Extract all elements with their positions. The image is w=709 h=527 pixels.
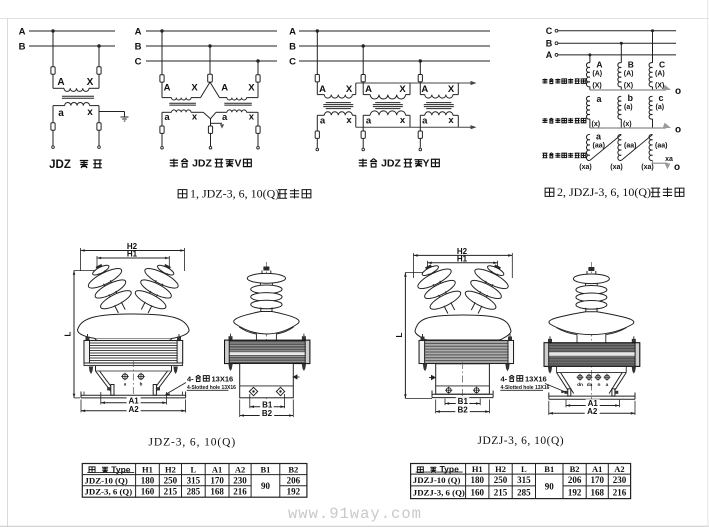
svg-text:X: X (346, 84, 353, 95)
svg-text:B: B (19, 42, 26, 53)
svg-text:(X): (X) (655, 83, 664, 90)
svg-text:A1: A1 (592, 464, 602, 474)
svg-text:a: a (606, 383, 609, 388)
svg-text:A: A (421, 84, 428, 95)
svg-text:(A): (A) (624, 71, 634, 78)
svg-text:B2: B2 (262, 409, 273, 418)
svg-text:B2: B2 (570, 464, 580, 474)
svg-text:A: A (164, 83, 171, 94)
svg-text:V: V (234, 158, 241, 170)
svg-text:Y: Y (422, 158, 429, 170)
svg-text:170: 170 (210, 475, 224, 485)
svg-text:n: n (598, 383, 601, 388)
svg-text:H1: H1 (142, 464, 153, 474)
svg-text:A2: A2 (587, 407, 598, 416)
svg-text:250: 250 (494, 475, 508, 485)
svg-text:JDZ: JDZ (192, 158, 212, 170)
svg-text:180: 180 (141, 475, 155, 485)
svg-text:A2: A2 (614, 464, 624, 474)
svg-text:x: x (448, 115, 454, 126)
svg-text:B: B (628, 60, 634, 70)
svg-text:160: 160 (471, 487, 485, 497)
svg-text:315: 315 (517, 475, 531, 485)
svg-text:b: b (628, 93, 634, 103)
svg-text:L: L (521, 464, 527, 474)
svg-text:C: C (289, 57, 296, 68)
svg-text:o: o (674, 162, 680, 173)
svg-text:A: A (596, 60, 602, 70)
svg-text:315: 315 (187, 475, 201, 485)
svg-text:L: L (395, 332, 404, 337)
svg-text:a: a (366, 115, 372, 126)
svg-text:X: X (191, 83, 198, 94)
svg-text:250: 250 (164, 475, 178, 485)
svg-text:L: L (64, 331, 73, 336)
svg-text:(xa): (xa) (610, 164, 622, 171)
svg-text:(X): (X) (592, 83, 601, 90)
svg-text:285: 285 (187, 487, 201, 497)
svg-text:(x): (x) (623, 121, 632, 128)
svg-text:90: 90 (545, 482, 555, 492)
svg-text:A2: A2 (235, 464, 245, 474)
svg-text:206: 206 (568, 475, 582, 485)
svg-text:216: 216 (613, 487, 627, 497)
svg-text:C: C (659, 60, 665, 70)
svg-text:A: A (135, 27, 142, 38)
svg-text:1, JDZ-3, 6, 10(Q): 1, JDZ-3, 6, 10(Q) (190, 187, 279, 201)
svg-text:JDZ: JDZ (381, 158, 401, 170)
svg-text:168: 168 (210, 487, 224, 497)
svg-text:215: 215 (164, 487, 178, 497)
svg-text:a: a (422, 115, 428, 126)
svg-text:B: B (546, 39, 553, 49)
svg-text:(a): (a) (656, 104, 665, 111)
svg-text:(X): (X) (624, 83, 633, 90)
svg-text:C: C (135, 57, 142, 68)
svg-text:170: 170 (591, 475, 605, 485)
svg-text:4-: 4- (187, 375, 194, 384)
svg-text:(xa): (xa) (579, 164, 591, 171)
svg-text:a: a (164, 112, 170, 123)
svg-text:a: a (58, 108, 64, 119)
svg-text:(aa): (aa) (624, 143, 636, 150)
svg-text:A: A (57, 77, 64, 88)
svg-text:(aa): (aa) (593, 143, 605, 150)
svg-text:B: B (289, 42, 296, 53)
svg-text:215: 215 (494, 487, 508, 497)
svg-text:160: 160 (141, 487, 155, 497)
svg-text:H1: H1 (127, 250, 138, 259)
svg-text:JDZJ-3, 6, 10(Q): JDZJ-3, 6, 10(Q) (478, 435, 565, 447)
svg-text:x: x (346, 115, 352, 126)
svg-text:A: A (221, 83, 228, 94)
svg-text:dn: dn (577, 382, 583, 388)
svg-text:4-: 4- (501, 375, 508, 384)
svg-text:206: 206 (287, 475, 301, 485)
svg-text:230: 230 (233, 475, 247, 485)
svg-text:o: o (675, 86, 681, 97)
svg-text:90: 90 (261, 481, 271, 491)
svg-text:c: c (659, 93, 664, 103)
svg-text:H1: H1 (472, 464, 483, 474)
svg-text:X: X (399, 84, 406, 95)
svg-text:216: 216 (233, 487, 247, 497)
svg-text:H1: H1 (457, 254, 468, 263)
svg-text:B1: B1 (260, 464, 270, 474)
svg-text:H2: H2 (495, 464, 506, 474)
svg-text:JDZ: JDZ (49, 159, 71, 171)
svg-text:A1: A1 (212, 464, 222, 474)
svg-text:(aa): (aa) (655, 143, 667, 150)
svg-text:192: 192 (568, 487, 582, 497)
svg-text:(x): (x) (592, 121, 601, 128)
svg-text:2, JDZJ-3, 6, 10(Q): 2, JDZJ-3, 6, 10(Q) (557, 185, 651, 199)
svg-text:www.91way.com: www.91way.com (288, 505, 422, 523)
svg-text:180: 180 (471, 475, 485, 485)
svg-text:A2: A2 (128, 405, 139, 414)
svg-text:192: 192 (287, 487, 301, 497)
svg-text:x: x (400, 115, 406, 126)
svg-text:(a): (a) (624, 104, 633, 111)
svg-text:B1: B1 (544, 464, 554, 474)
svg-text:JDZ-10 (Q): JDZ-10 (Q) (85, 475, 128, 485)
svg-text:X: X (248, 83, 255, 94)
svg-text:a: a (320, 115, 326, 126)
svg-text:JDZJ-3, 6 (Q): JDZJ-3, 6 (Q) (413, 487, 465, 497)
svg-text:b: b (140, 382, 143, 387)
svg-text:A: A (546, 50, 553, 60)
svg-text:B2: B2 (457, 405, 468, 414)
svg-text:B2: B2 (288, 464, 298, 474)
svg-text:JDZ-3, 6, 10(Q): JDZ-3, 6, 10(Q) (149, 437, 237, 449)
svg-text:A: A (289, 27, 296, 38)
svg-text:X: X (87, 77, 94, 88)
svg-text:H2: H2 (165, 464, 176, 474)
svg-text:x: x (87, 107, 93, 118)
svg-text:(xa): (xa) (641, 164, 653, 171)
svg-text:x: x (192, 111, 198, 122)
svg-text:285: 285 (517, 487, 531, 497)
svg-text:B1: B1 (262, 400, 273, 409)
svg-text:C: C (546, 26, 553, 36)
svg-text:13X16: 13X16 (525, 375, 547, 384)
svg-text:A: A (365, 84, 372, 95)
svg-text:a: a (222, 112, 228, 123)
svg-text:JDZ-3, 6 (Q): JDZ-3, 6 (Q) (85, 487, 133, 497)
svg-text:13X16: 13X16 (212, 375, 234, 384)
svg-text:x: x (249, 111, 255, 122)
svg-text:da: da (587, 382, 593, 388)
svg-text:A: A (319, 84, 326, 95)
svg-text:L: L (191, 464, 197, 474)
svg-text:o: o (675, 125, 681, 136)
svg-text:(A): (A) (655, 71, 665, 78)
svg-text:xa: xa (665, 156, 673, 163)
svg-text:168: 168 (591, 487, 605, 497)
svg-text:B: B (135, 42, 142, 53)
svg-text:A: A (19, 27, 26, 38)
svg-text:(A): (A) (592, 71, 602, 78)
svg-text:230: 230 (613, 475, 627, 485)
svg-text:JDZJ-10 (Q): JDZJ-10 (Q) (413, 475, 461, 485)
svg-text:X: X (448, 84, 455, 95)
